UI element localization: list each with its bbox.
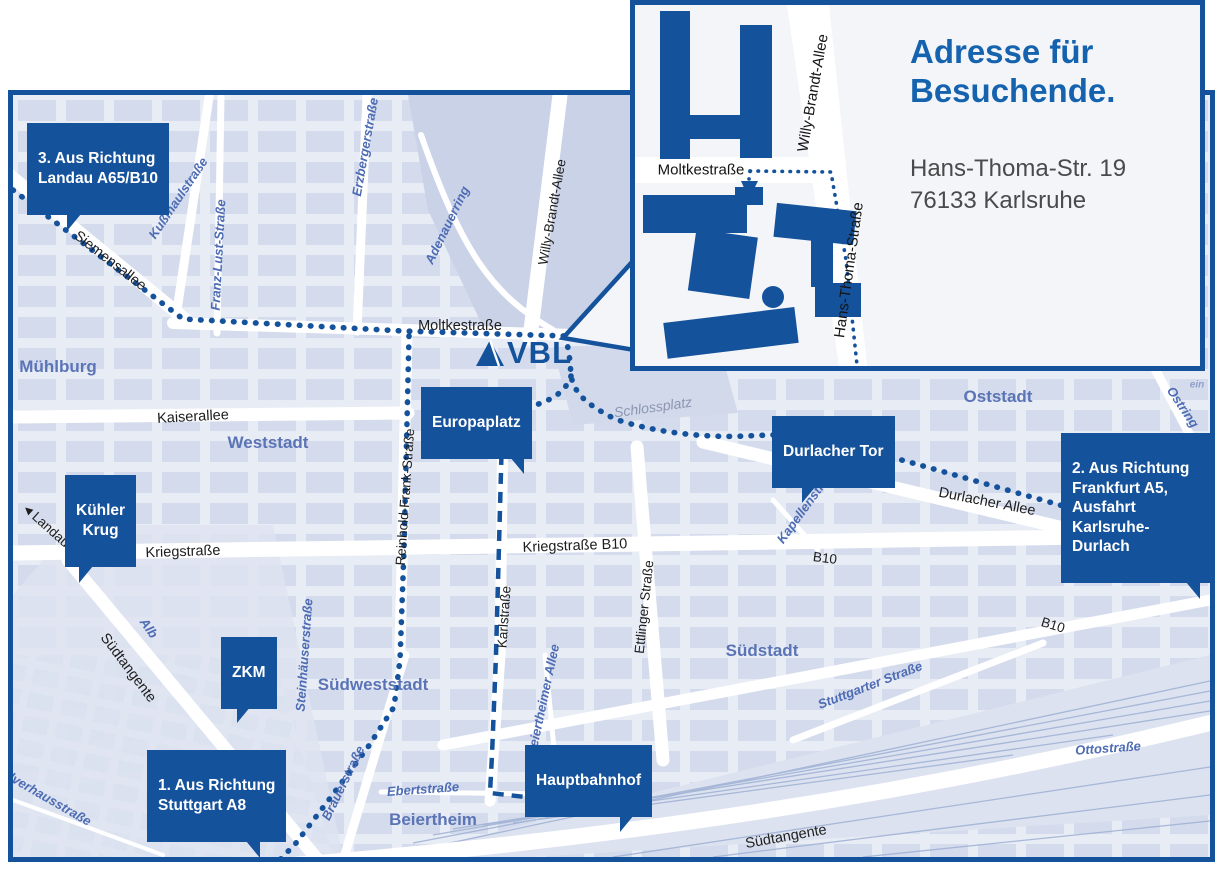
- callout-kuehler-krug: Kühler Krug: [65, 475, 136, 567]
- inset-address: Hans-Thoma-Str. 19 76133 Karlsruhe: [910, 153, 1126, 218]
- inset-moltke-band: [635, 157, 842, 183]
- callout-tail: [1186, 582, 1200, 599]
- callout-tail: [510, 457, 524, 474]
- callout-durlacher-tor: Durlacher Tor: [772, 416, 895, 488]
- callout-route2: 2. Aus Richtung Frankfurt A5, Ausfahrt K…: [1061, 433, 1210, 583]
- callout-europaplatz: Europaplatz: [421, 387, 532, 459]
- callout-route3: 3. Aus Richtung Landau A65/B10: [27, 123, 169, 215]
- callout-route1: 1. Aus Richtung Stuttgart A8: [147, 750, 286, 842]
- vbl-directions-map-page: Mühlburg Weststadt Oststadt Südstadt Süd…: [0, 0, 1230, 874]
- callout-hauptbahnhof: Hauptbahnhof: [525, 745, 652, 817]
- callout-tail: [246, 841, 260, 858]
- callout-tail: [79, 566, 93, 583]
- callout-tail: [237, 706, 251, 723]
- inset-title: Adresse für Besuchende.: [910, 33, 1195, 111]
- callout-tail: [802, 486, 816, 503]
- address-inset-panel: Moltkestraße Willy-Brandt-Allee Hans-Tho…: [630, 0, 1205, 371]
- inset-address-city: 76133 Karlsruhe: [910, 185, 1126, 217]
- callout-tail: [620, 815, 634, 832]
- callout-tail: [67, 214, 81, 231]
- vbl-triangle-icon: [475, 339, 505, 367]
- callout-zkm: ZKM: [221, 637, 277, 709]
- inset-address-street: Hans-Thoma-Str. 19: [910, 153, 1126, 185]
